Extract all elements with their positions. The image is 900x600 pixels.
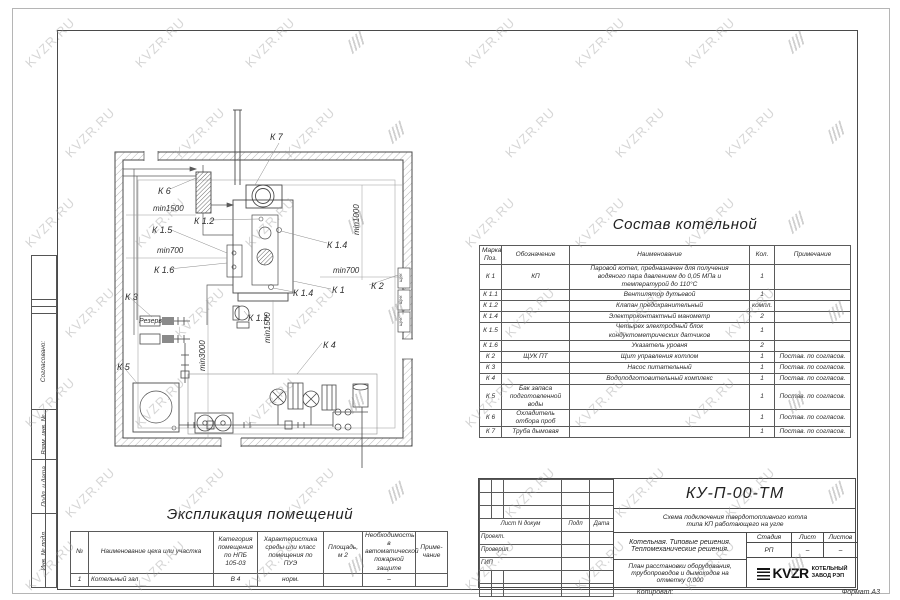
cell — [590, 506, 614, 519]
left-stamp-column: Согласовано: Взам. инв. № Подп. и дата И… — [31, 255, 57, 588]
cell: 1 — [750, 384, 775, 409]
plan-label: К 3 — [125, 292, 138, 302]
cell — [480, 493, 492, 506]
cell — [570, 427, 750, 438]
cell — [480, 506, 492, 519]
panel-label: ЩУК — [398, 317, 403, 326]
header-cell: Лист N докум — [480, 519, 562, 532]
title-block-right: КУ-П-00-ТМ Схема подключения твердотопли… — [613, 479, 856, 587]
cell: К 1.1 — [480, 290, 502, 301]
cell — [562, 571, 590, 584]
object-name: Котельная. Типовые решения. Тепломеханич… — [614, 533, 746, 559]
cell: 1 — [71, 573, 89, 586]
plan-label: К 7 — [270, 132, 284, 142]
format-label: Формат А3 — [790, 589, 880, 596]
cell: 2 — [750, 340, 775, 351]
plan-label: К 5 — [117, 362, 131, 372]
cell — [562, 480, 590, 493]
cell: К 6 — [480, 410, 502, 427]
cell — [562, 506, 590, 519]
cell: Четырех электродный блок кондуктометриче… — [570, 323, 750, 340]
storage-tank — [133, 383, 179, 432]
boiler-k1 — [233, 185, 293, 301]
cell: Электроконтактный манометр — [570, 312, 750, 323]
cell: КП — [502, 265, 570, 290]
header-cell: Наименование цеха или участка — [89, 532, 214, 574]
plan-label: К 4 — [323, 340, 336, 350]
stamp-cell-vzam: Взам. инв. № — [32, 409, 56, 459]
cell: К 1 — [480, 265, 502, 290]
cell: Клапан предохранительный — [570, 301, 750, 312]
cell — [775, 323, 851, 340]
cell — [562, 545, 590, 558]
cell — [562, 584, 590, 597]
header-cell: Характеристика среды или класс помещения… — [258, 532, 324, 574]
cell — [492, 571, 504, 584]
cell: норм. — [258, 573, 324, 586]
level-indicator-block — [227, 245, 242, 277]
cell — [562, 532, 590, 545]
cell — [562, 558, 590, 571]
cell: Насос питательный — [570, 362, 750, 373]
cell: Котельный зал — [89, 573, 214, 586]
cell — [492, 493, 504, 506]
cell: Указатель уровня — [570, 340, 750, 351]
copied-label: Копировал: — [600, 589, 710, 596]
stamp-divider — [32, 299, 56, 300]
stamp-label: Согласовано: — [41, 341, 48, 382]
equipment-table: Марка Поз. Обозначение Наименование Кол.… — [479, 245, 851, 438]
cell: Постав. по согласов. — [775, 427, 851, 438]
role-cell: Проект. — [480, 532, 562, 545]
cell: Бак запаса подготовленной воды — [502, 384, 570, 409]
cell: 2 — [750, 312, 775, 323]
cell: ЩУК ПТ — [502, 351, 570, 362]
header-cell: Наименование — [570, 246, 750, 265]
plan-labels: К 7 К 6 min1500 К 1.5 min700 К 1.6 К 3 Р… — [117, 132, 384, 372]
stage-value: – — [824, 543, 857, 558]
cell — [590, 532, 614, 545]
plan-dimension: min1000 — [352, 204, 361, 235]
cell: В 4 — [214, 573, 258, 586]
cell: К 5 — [480, 384, 502, 409]
cell: Труба дымовая — [502, 427, 570, 438]
cell: 1 — [750, 290, 775, 301]
document-title: Схема подключения твердотопливного котла… — [614, 509, 856, 533]
cell — [775, 312, 851, 323]
cell — [570, 410, 750, 427]
feed-pumps — [140, 316, 190, 383]
cell — [480, 480, 492, 493]
header-cell: Листов — [824, 533, 857, 543]
cell: 1 — [750, 362, 775, 373]
panel-label: ЩУК — [398, 273, 403, 282]
cell: Щит управления котлом — [570, 351, 750, 362]
cell — [504, 493, 562, 506]
header-cell: Примечание — [775, 246, 851, 265]
header-cell: Лист — [792, 533, 824, 543]
cell — [775, 290, 851, 301]
cell: К 1.5 — [480, 323, 502, 340]
cell: К 4 — [480, 373, 502, 384]
plan-label: min700 — [333, 266, 360, 275]
cell — [504, 506, 562, 519]
stamp-cell-inv: Инв. № подл. — [32, 513, 56, 587]
cell: 1 — [750, 351, 775, 362]
logo-text: KVZR — [773, 565, 809, 581]
sheet-title: План расстановки оборудования, трубопров… — [614, 559, 746, 587]
explication-table: № Наименование цеха или участка Категори… — [70, 531, 448, 587]
header-cell: Приме- чание — [416, 532, 448, 574]
cell: К 1.2 — [480, 301, 502, 312]
cell — [502, 312, 570, 323]
header-cell: Необходимость в автоматической пожарной … — [363, 532, 416, 574]
plan-dimension: min1500 — [263, 312, 272, 343]
water-treatment-equipment — [179, 383, 368, 468]
panel-label: ЩУК — [398, 295, 403, 304]
cell — [775, 301, 851, 312]
role-cell: Проверил — [480, 545, 562, 558]
cell — [502, 362, 570, 373]
plan-label: К 6 — [158, 186, 171, 196]
cell — [504, 584, 562, 597]
cell: Постав. по согласов. — [775, 410, 851, 427]
plan-label: К 1.4 — [293, 288, 313, 298]
company-logo: KVZR КОТЕЛЬНЫЙ ЗАВОД РЭП — [746, 559, 857, 587]
chimney — [233, 110, 242, 185]
cell: Паровой котел, предназначен для получени… — [570, 265, 750, 290]
dimension-lines — [126, 185, 403, 438]
role-cell: ГИП — [480, 558, 562, 571]
cell — [492, 480, 504, 493]
cell — [562, 493, 590, 506]
stamp-label: Подп. и дата — [41, 466, 48, 507]
cell: Постав. по согласов. — [775, 351, 851, 362]
cell — [324, 573, 363, 586]
sample-cooler — [196, 165, 211, 213]
cell — [570, 384, 750, 409]
cell: Постав. по согласов. — [775, 384, 851, 409]
header-cell: Кол. — [750, 246, 775, 265]
cell — [590, 545, 614, 558]
plan-label: Резерв — [139, 318, 162, 325]
plan-dimension: min3000 — [198, 340, 207, 371]
stamp-cell-agreed: Согласовано: — [32, 313, 56, 409]
title-block-signatures: Лист N докум Подп Дата Проект. Проверил … — [479, 479, 614, 597]
cell — [590, 480, 614, 493]
cell: 1 — [750, 427, 775, 438]
cell — [590, 493, 614, 506]
header-cell: Подп — [562, 519, 590, 532]
cell — [590, 558, 614, 571]
title-block: Лист N докум Подп Дата Проект. Проверил … — [478, 478, 856, 588]
header-cell: Площадь, м 2 — [324, 532, 363, 574]
cell: К 3 — [480, 362, 502, 373]
header-cell: Категория помещения по НПБ 105-03 — [214, 532, 258, 574]
control-panels: ЩУК ЩУК ЩУК — [398, 268, 410, 332]
cell: – — [363, 573, 416, 586]
cell — [502, 340, 570, 351]
plan-label: К 1.6 — [154, 265, 174, 275]
kvzr-waves-icon — [757, 567, 770, 580]
cell — [504, 571, 562, 584]
cell — [775, 265, 851, 290]
cell — [492, 506, 504, 519]
header-cell: № — [71, 532, 89, 574]
header-cell: Марка Поз. — [480, 246, 502, 265]
cell: Вентилятор дутьевой — [570, 290, 750, 301]
cell: компл. — [750, 301, 775, 312]
stage-value: – — [792, 543, 824, 558]
cell — [775, 340, 851, 351]
plan-label: min700 — [157, 246, 184, 255]
stage-value: РП — [747, 543, 792, 558]
cell — [492, 584, 504, 597]
cell — [590, 571, 614, 584]
logo-org-text: КОТЕЛЬНЫЙ ЗАВОД РЭП — [812, 566, 848, 579]
cell — [502, 301, 570, 312]
header-cell: Обозначение — [502, 246, 570, 265]
plan-label: К 2 — [371, 281, 384, 291]
plan-label: К 1.5 — [152, 225, 173, 235]
stamp-divider — [45, 409, 46, 587]
cell: 1 — [750, 373, 775, 384]
drawing-sheet: { "watermark": { "text": "KVZR.RU" }, "s… — [0, 0, 900, 600]
cell — [502, 373, 570, 384]
cell: Охладитель отбора проб — [502, 410, 570, 427]
cell: Водоподготовительный комплекс — [570, 373, 750, 384]
building-walls — [115, 152, 412, 446]
cell: К 1.6 — [480, 340, 502, 351]
header-cell: Стадия — [747, 533, 792, 543]
header-cell: Дата — [590, 519, 614, 532]
equipment-table-title: Состав котельной — [520, 216, 850, 233]
stamp-label: Инв. № подл. — [41, 530, 48, 570]
cell — [416, 573, 448, 586]
door-openings — [144, 150, 414, 448]
stamp-divider — [32, 306, 56, 307]
cell: 1 — [750, 323, 775, 340]
cell — [502, 290, 570, 301]
cell: Постав. по согласов. — [775, 362, 851, 373]
cell: 1 — [750, 410, 775, 427]
cell — [480, 571, 492, 584]
document-number: КУ-П-00-ТМ — [614, 479, 856, 509]
cell — [504, 480, 562, 493]
explication-title: Экспликация помещений — [100, 506, 420, 523]
cell: К 1.4 — [480, 312, 502, 323]
plan-label: К 1.2 — [194, 216, 214, 226]
boiler-room-floor-plan: ЩУК ЩУК ЩУК К 7 К 6 min1500 К 1.5 min700 — [57, 85, 477, 495]
cell: К 2 — [480, 351, 502, 362]
plan-label: min1500 — [153, 204, 184, 213]
cell: К 7 — [480, 427, 502, 438]
cell — [502, 323, 570, 340]
blower-fan — [233, 306, 249, 328]
plan-label: К 1 — [332, 285, 345, 295]
cell: Постав. по согласов. — [775, 373, 851, 384]
plan-label: К 1.4 — [327, 240, 347, 250]
stamp-label: Взам. инв. № — [41, 414, 48, 454]
stamp-cell-podp: Подп. и дата — [32, 459, 56, 513]
cell — [480, 584, 492, 597]
cell: 1 — [750, 265, 775, 290]
